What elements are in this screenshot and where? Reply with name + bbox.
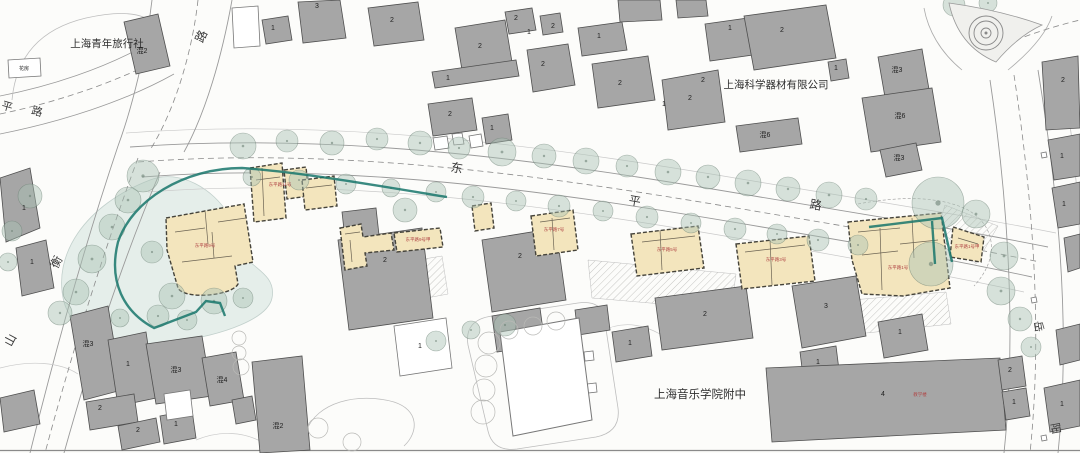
building bbox=[662, 70, 725, 130]
tree-center-dot bbox=[91, 258, 94, 261]
tree-center-dot bbox=[7, 261, 9, 263]
landmark-label: 上海音乐学院附中 bbox=[654, 387, 746, 401]
building-number: 2 bbox=[514, 15, 518, 22]
tree-center-dot bbox=[1019, 318, 1021, 320]
building-number: 2 bbox=[701, 77, 705, 84]
roundabout-center bbox=[985, 32, 988, 35]
building bbox=[1064, 234, 1080, 272]
building-number: 2 bbox=[478, 43, 482, 50]
tree-center-dot bbox=[472, 196, 474, 198]
building-number: 1 bbox=[834, 65, 838, 72]
tree-center-dot bbox=[435, 191, 437, 193]
building-number: 混2 bbox=[137, 46, 148, 55]
building-number: 混3 bbox=[171, 365, 182, 374]
tree-center-dot bbox=[251, 176, 253, 178]
building-outline bbox=[433, 136, 449, 150]
red-building-label: 东平路1号 bbox=[888, 264, 909, 271]
building-number: 1 bbox=[126, 361, 130, 368]
building-number: 1 bbox=[1062, 201, 1066, 208]
landmark-label: 上海青年旅行社 bbox=[70, 37, 144, 50]
road-name-char: 平 bbox=[0, 100, 14, 115]
building bbox=[592, 56, 655, 108]
building bbox=[505, 8, 536, 34]
tree-center-dot bbox=[929, 262, 933, 266]
road-name-char: 山 bbox=[1, 332, 19, 349]
building-number: 1 bbox=[728, 25, 732, 32]
building-number: 1 bbox=[1060, 401, 1064, 408]
building bbox=[878, 314, 928, 358]
tree-center-dot bbox=[111, 226, 114, 229]
building-number: 2 bbox=[383, 257, 387, 264]
red-building-label: 东平路11号 bbox=[269, 181, 292, 188]
site-line bbox=[0, 363, 78, 374]
building-outline bbox=[584, 351, 594, 361]
building-number: 3 bbox=[824, 303, 828, 310]
tree-outline bbox=[473, 379, 495, 401]
road-name-char: 东 bbox=[450, 160, 464, 176]
tree-center-dot bbox=[975, 213, 978, 216]
building-number: 1 bbox=[1060, 153, 1064, 160]
tree-center-dot bbox=[626, 165, 628, 167]
building-outline bbox=[1041, 435, 1047, 441]
tree-center-dot bbox=[1000, 290, 1003, 293]
building-number: 花房 bbox=[19, 65, 29, 72]
red-building-label: 东平路5号 bbox=[657, 246, 678, 253]
building bbox=[744, 5, 836, 70]
building-number: 1 bbox=[898, 329, 902, 336]
building-number: 2 bbox=[1008, 367, 1012, 374]
playground-field bbox=[500, 318, 592, 436]
tree-center-dot bbox=[987, 2, 989, 4]
tree-center-dot bbox=[1030, 346, 1032, 348]
building-number: 混4 bbox=[217, 375, 228, 384]
tree-center-dot bbox=[690, 222, 692, 224]
road-name-char: 路 bbox=[192, 27, 211, 44]
tree-center-dot bbox=[817, 239, 819, 241]
building-number: 混3 bbox=[83, 339, 94, 348]
tree-outline bbox=[308, 418, 328, 438]
tree-center-dot bbox=[151, 251, 153, 253]
building-number: 混6 bbox=[760, 130, 771, 139]
roundabout-island bbox=[949, 3, 1042, 62]
tree-center-dot bbox=[141, 174, 144, 177]
tree-center-dot bbox=[515, 200, 517, 202]
building bbox=[298, 0, 346, 43]
building bbox=[1042, 56, 1080, 130]
building-outline bbox=[164, 390, 193, 420]
building-number: 1 bbox=[1012, 399, 1016, 406]
building-number: 2 bbox=[1061, 77, 1065, 84]
building bbox=[368, 2, 424, 46]
tree-outline bbox=[343, 433, 361, 451]
tree-center-dot bbox=[1003, 255, 1006, 258]
roundabout bbox=[949, 3, 1042, 62]
building-number: 1 bbox=[271, 25, 275, 32]
building-number: 1 bbox=[597, 33, 601, 40]
building bbox=[0, 390, 40, 432]
building bbox=[1052, 182, 1080, 228]
tree-center-dot bbox=[75, 291, 78, 294]
red-building-label: 东平路9号甲 bbox=[405, 236, 430, 243]
tree-center-dot bbox=[157, 315, 159, 317]
building-number: 2 bbox=[780, 27, 784, 34]
tree-center-dot bbox=[171, 295, 174, 298]
building-number: 混3 bbox=[894, 153, 905, 162]
building-number: 2 bbox=[390, 17, 394, 24]
building-number: 1 bbox=[418, 343, 422, 350]
building-number: 1 bbox=[30, 259, 34, 266]
road-name-char: 平 bbox=[628, 193, 642, 209]
road-name-char: 阳 bbox=[1048, 422, 1063, 435]
building-outline bbox=[1031, 297, 1037, 303]
building bbox=[612, 326, 652, 362]
tree-center-dot bbox=[435, 340, 437, 342]
tree-outline bbox=[475, 355, 497, 377]
building bbox=[1056, 324, 1080, 365]
tree-center-dot bbox=[787, 188, 789, 190]
heritage-building bbox=[531, 210, 578, 256]
building-number: 1 bbox=[816, 359, 820, 366]
tree-center-dot bbox=[286, 140, 288, 142]
building-number: 2 bbox=[518, 253, 522, 260]
tree-outline bbox=[471, 400, 495, 424]
tree-center-dot bbox=[747, 182, 750, 185]
building bbox=[527, 44, 575, 92]
tree-center-dot bbox=[707, 176, 709, 178]
tree-center-dot bbox=[543, 155, 545, 157]
building bbox=[828, 59, 849, 81]
tree-center-dot bbox=[345, 183, 347, 185]
building-number: 3 bbox=[315, 3, 319, 10]
tree-center-dot bbox=[667, 171, 670, 174]
building bbox=[1048, 134, 1080, 180]
building bbox=[1002, 388, 1030, 420]
building bbox=[618, 0, 662, 22]
tree-center-dot bbox=[29, 195, 31, 197]
tree-center-dot bbox=[127, 199, 130, 202]
tree-center-dot bbox=[776, 233, 778, 235]
tree-center-dot bbox=[11, 230, 13, 232]
building-number: 2 bbox=[618, 80, 622, 87]
tree-center-dot bbox=[242, 145, 245, 148]
building bbox=[862, 88, 941, 152]
building-number: 1 bbox=[446, 75, 450, 82]
site-plan: 上海青年旅行社上海科学器材有限公司上海音乐学院附中东平路衡山路平路岳阳混2312… bbox=[0, 0, 1080, 453]
building bbox=[428, 98, 477, 136]
site-line bbox=[196, 433, 262, 442]
road-name-char: 岳 bbox=[1031, 320, 1046, 333]
building-number: 混3 bbox=[892, 65, 903, 74]
building-number: 2 bbox=[541, 61, 545, 68]
tree-center-dot bbox=[828, 194, 831, 197]
tree-center-dot bbox=[501, 151, 504, 154]
road-name-char: 路 bbox=[30, 104, 44, 120]
building-number: 混2 bbox=[273, 421, 284, 430]
building-number: 2 bbox=[136, 427, 140, 434]
tree-center-dot bbox=[119, 317, 121, 319]
building-number: 1 bbox=[490, 125, 494, 132]
building-number: 1 bbox=[628, 340, 632, 347]
red-building-label: 东平路3号 bbox=[766, 256, 787, 263]
building-number: 1 bbox=[22, 205, 26, 212]
tree-center-dot bbox=[419, 142, 421, 144]
building bbox=[252, 356, 310, 453]
building-number: 混6 bbox=[895, 111, 906, 120]
tree-center-dot bbox=[585, 160, 588, 163]
tree-center-dot bbox=[646, 216, 648, 218]
building-outline bbox=[232, 6, 260, 48]
tree-center-dot bbox=[242, 297, 244, 299]
building-number: 4 bbox=[881, 391, 885, 398]
tree-center-dot bbox=[857, 244, 859, 246]
landmark-label: 上海科学器材有限公司 bbox=[724, 78, 829, 91]
red-building-label: 东平路7号 bbox=[544, 226, 565, 233]
building-outline bbox=[1041, 152, 1047, 158]
tree-center-dot bbox=[935, 200, 940, 205]
tree-center-dot bbox=[59, 312, 61, 314]
building-number: 1 bbox=[662, 101, 666, 108]
building bbox=[766, 358, 1006, 442]
building bbox=[16, 240, 54, 296]
site-line bbox=[0, 74, 174, 134]
tree-center-dot bbox=[331, 142, 333, 144]
building bbox=[998, 356, 1026, 390]
building-number: 1 bbox=[174, 421, 178, 428]
building bbox=[676, 0, 708, 18]
tree-center-dot bbox=[186, 319, 188, 321]
building-number: 2 bbox=[98, 405, 102, 412]
building-number: 2 bbox=[448, 111, 452, 118]
tree-center-dot bbox=[458, 147, 460, 149]
building-number: 2 bbox=[688, 95, 692, 102]
site-plan-map: 上海青年旅行社上海科学器材有限公司上海音乐学院附中东平路衡山路平路岳阳混2312… bbox=[0, 0, 1080, 453]
tree-center-dot bbox=[734, 228, 736, 230]
tree-center-dot bbox=[504, 324, 506, 326]
tree-outline bbox=[232, 331, 246, 345]
building-outline bbox=[469, 134, 483, 148]
red-building-label: 东平路9号 bbox=[195, 242, 216, 249]
building bbox=[232, 396, 256, 424]
building bbox=[578, 22, 627, 56]
tree-center-dot bbox=[404, 209, 406, 211]
tree-center-dot bbox=[298, 179, 300, 181]
building-number: 1 bbox=[527, 29, 531, 36]
tree-center-dot bbox=[470, 329, 472, 331]
red-building-label: 东平路1号甲 bbox=[954, 243, 979, 250]
tree-center-dot bbox=[865, 198, 867, 200]
tree-center-dot bbox=[558, 205, 560, 207]
tree-center-dot bbox=[602, 210, 604, 212]
building bbox=[792, 276, 866, 348]
building bbox=[262, 16, 292, 44]
tree-center-dot bbox=[376, 138, 378, 140]
building-number: 2 bbox=[703, 311, 707, 318]
building-number: 2 bbox=[551, 23, 555, 30]
red-building-label: 教学楼 bbox=[913, 391, 927, 398]
road-name-char: 路 bbox=[809, 196, 823, 213]
